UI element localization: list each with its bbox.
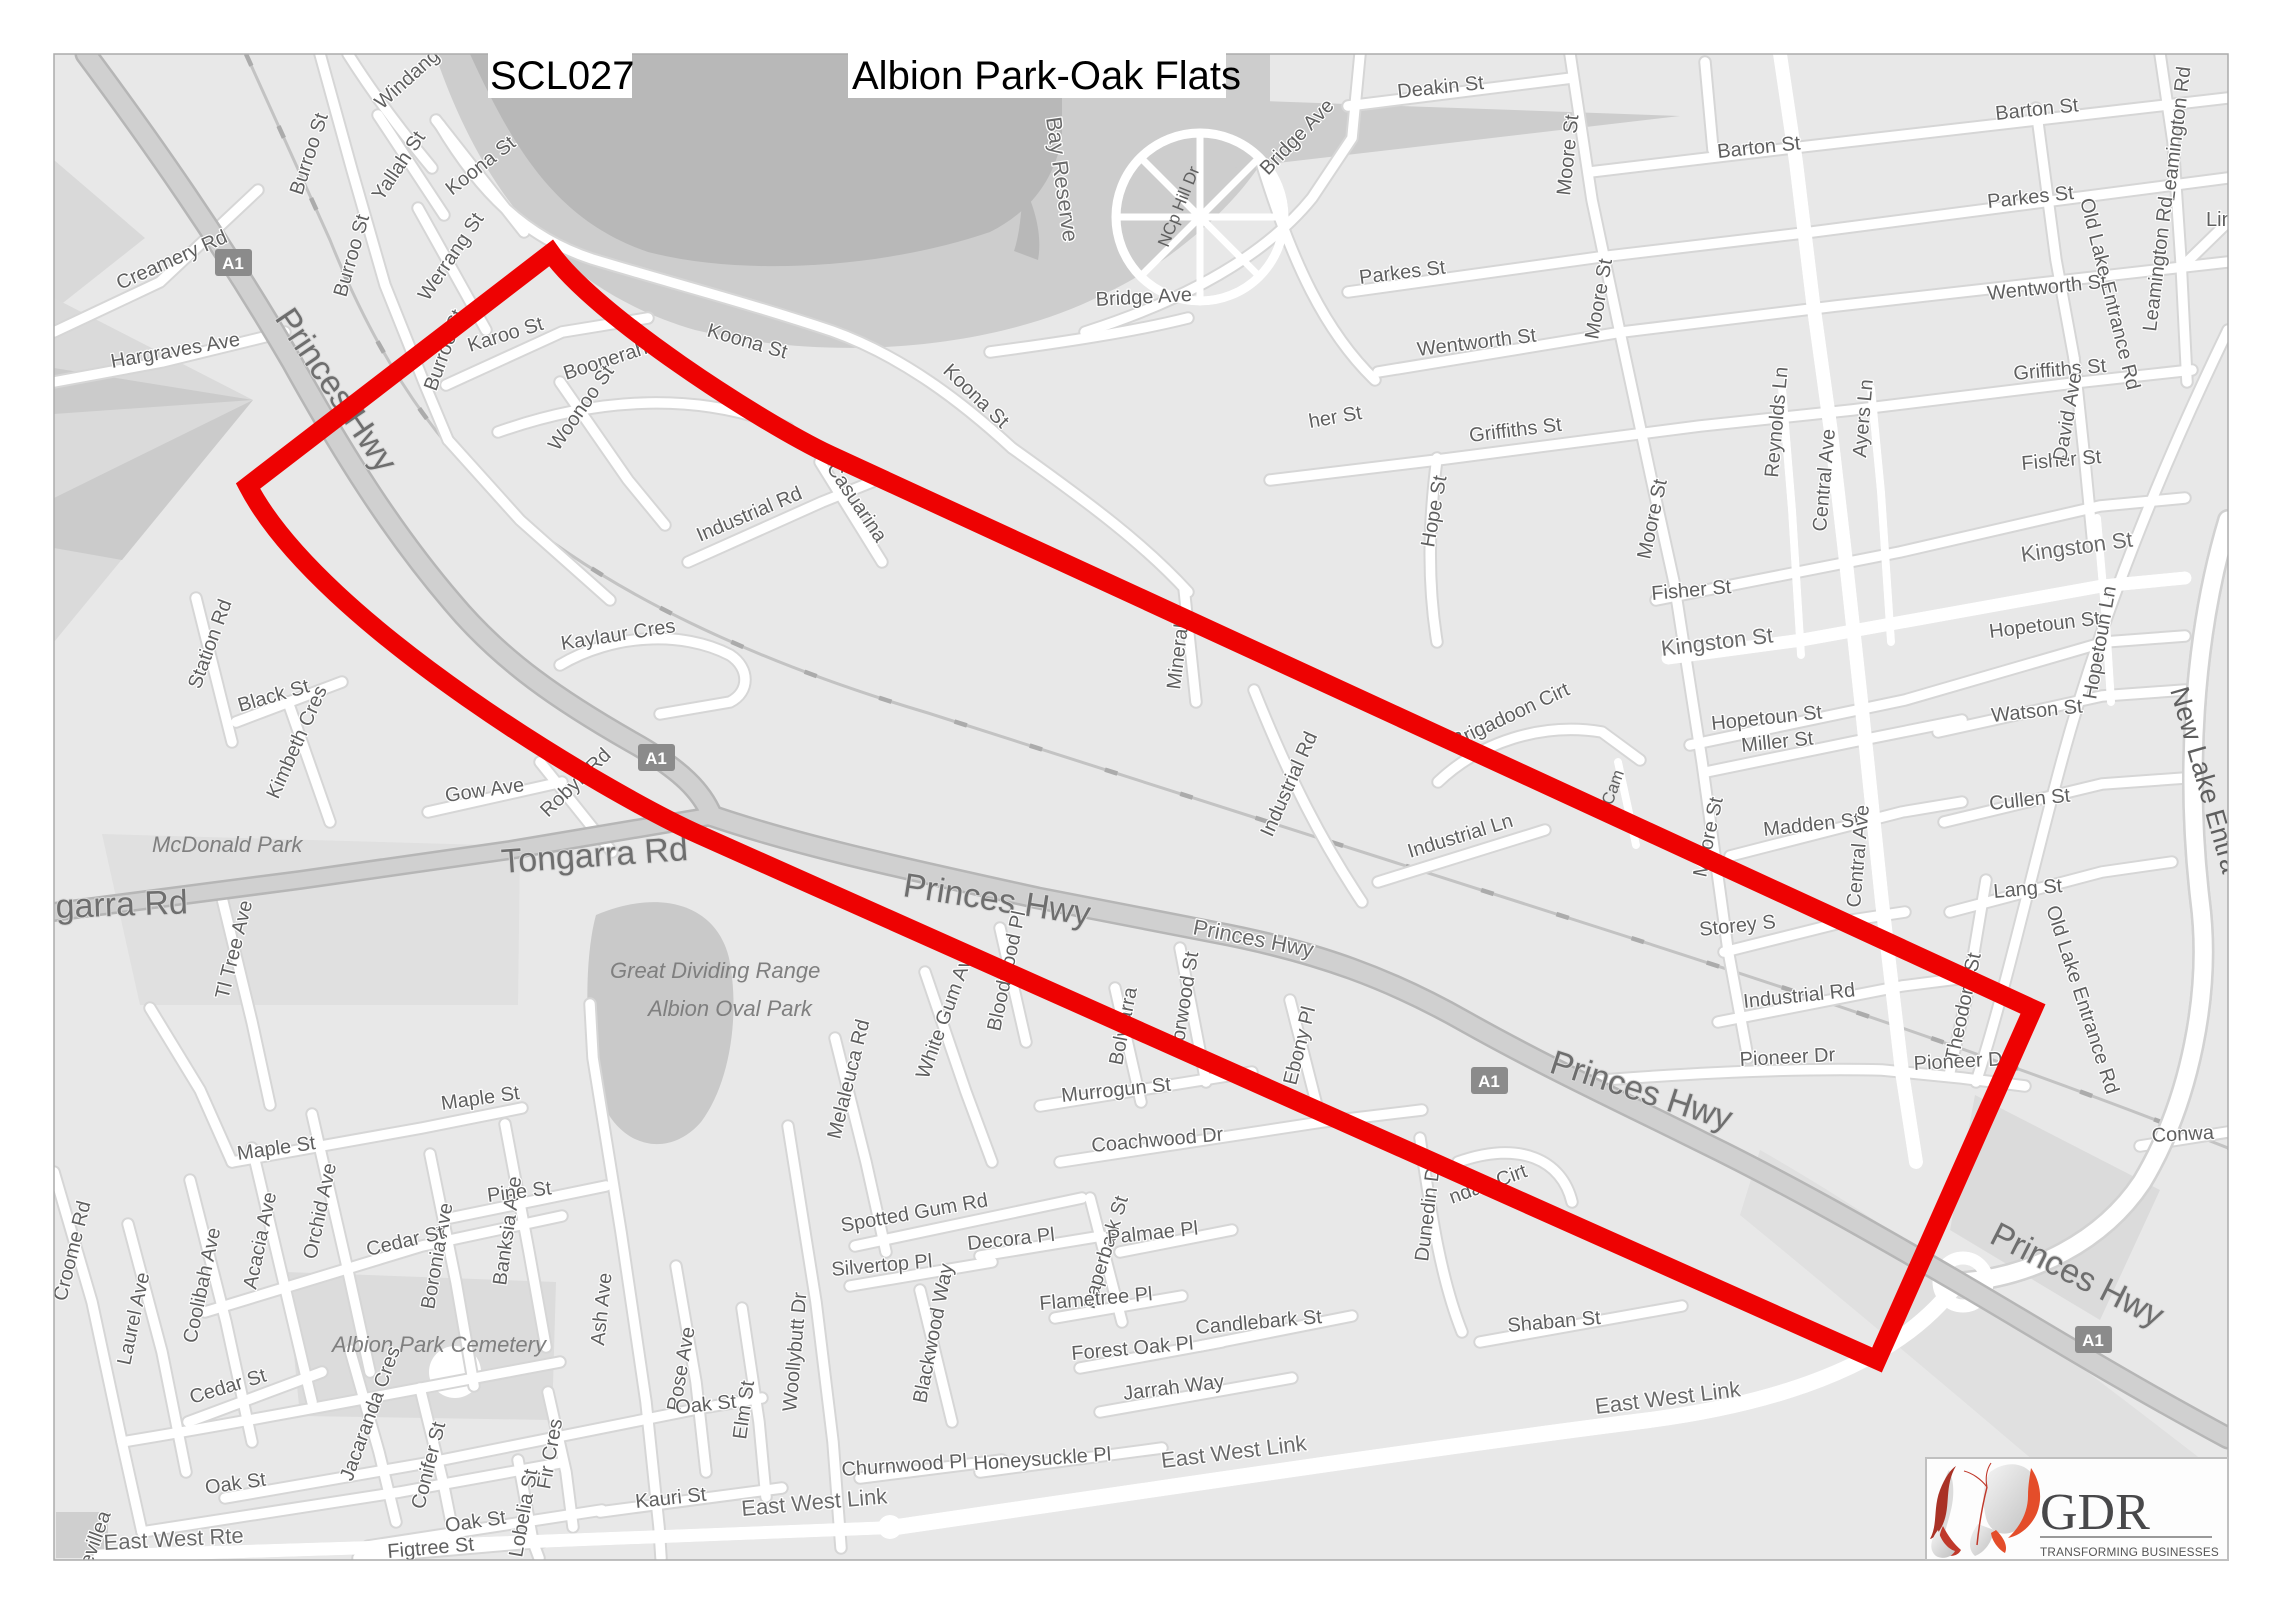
svg-text:A1: A1	[2082, 1331, 2104, 1350]
svg-text:Great Dividing Range: Great Dividing Range	[610, 958, 820, 983]
svg-text:GDR: GDR	[2040, 1484, 2150, 1541]
svg-text:TRANSFORMING BUSINESSES: TRANSFORMING BUSINESSES	[2040, 1545, 2219, 1559]
svg-text:Albion Park Cemetery: Albion Park Cemetery	[330, 1332, 548, 1357]
svg-text:A1: A1	[222, 254, 244, 273]
svg-text:A1: A1	[1478, 1072, 1500, 1091]
svg-text:garra Rd: garra Rd	[55, 883, 189, 926]
svg-text:Albion Park-Oak Flats: Albion Park-Oak Flats	[852, 54, 1241, 98]
svg-text:Conwa: Conwa	[2151, 1122, 2215, 1147]
svg-text:McDonald Park: McDonald Park	[152, 832, 303, 857]
svg-text:A1: A1	[645, 749, 667, 768]
svg-text:Albion Oval Park: Albion Oval Park	[646, 996, 813, 1021]
svg-text:SCL027: SCL027	[490, 54, 635, 98]
